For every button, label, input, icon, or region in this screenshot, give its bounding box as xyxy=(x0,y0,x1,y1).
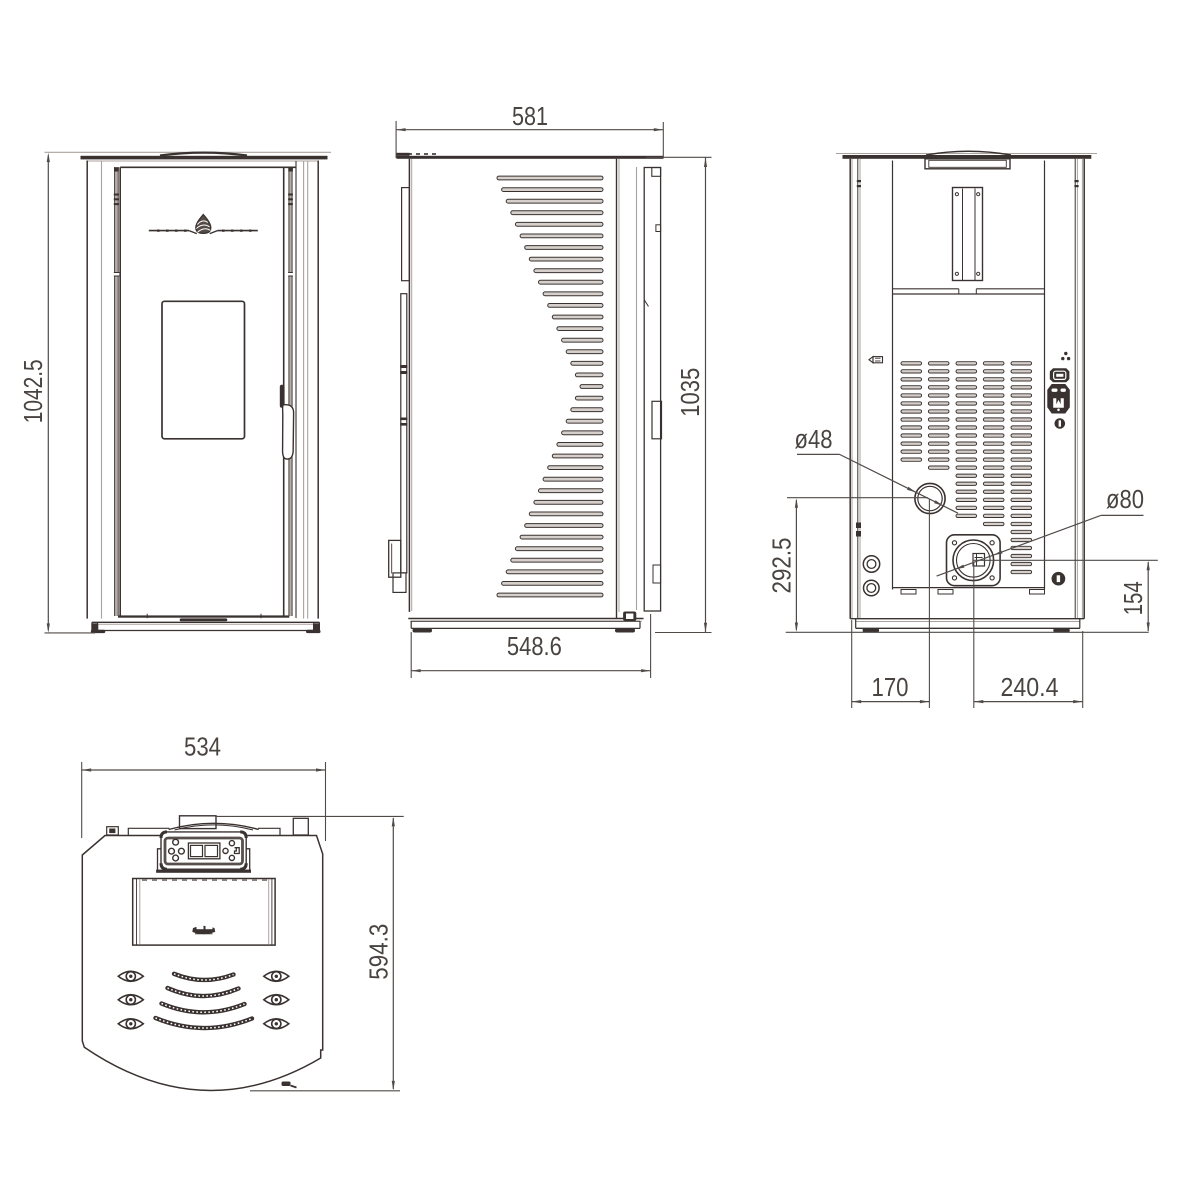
svg-text:ø48: ø48 xyxy=(795,426,833,454)
svg-text:594.3: 594.3 xyxy=(366,924,394,980)
svg-text:ø80: ø80 xyxy=(1106,486,1144,514)
svg-text:1042.5: 1042.5 xyxy=(20,359,48,423)
svg-text:154: 154 xyxy=(1120,581,1148,615)
svg-text:581: 581 xyxy=(512,103,548,131)
svg-text:292.5: 292.5 xyxy=(769,538,797,594)
svg-text:1035: 1035 xyxy=(677,368,705,417)
svg-text:548.6: 548.6 xyxy=(507,633,562,661)
svg-text:240.4: 240.4 xyxy=(1001,674,1059,702)
svg-text:534: 534 xyxy=(184,734,221,762)
svg-text:170: 170 xyxy=(872,674,909,702)
